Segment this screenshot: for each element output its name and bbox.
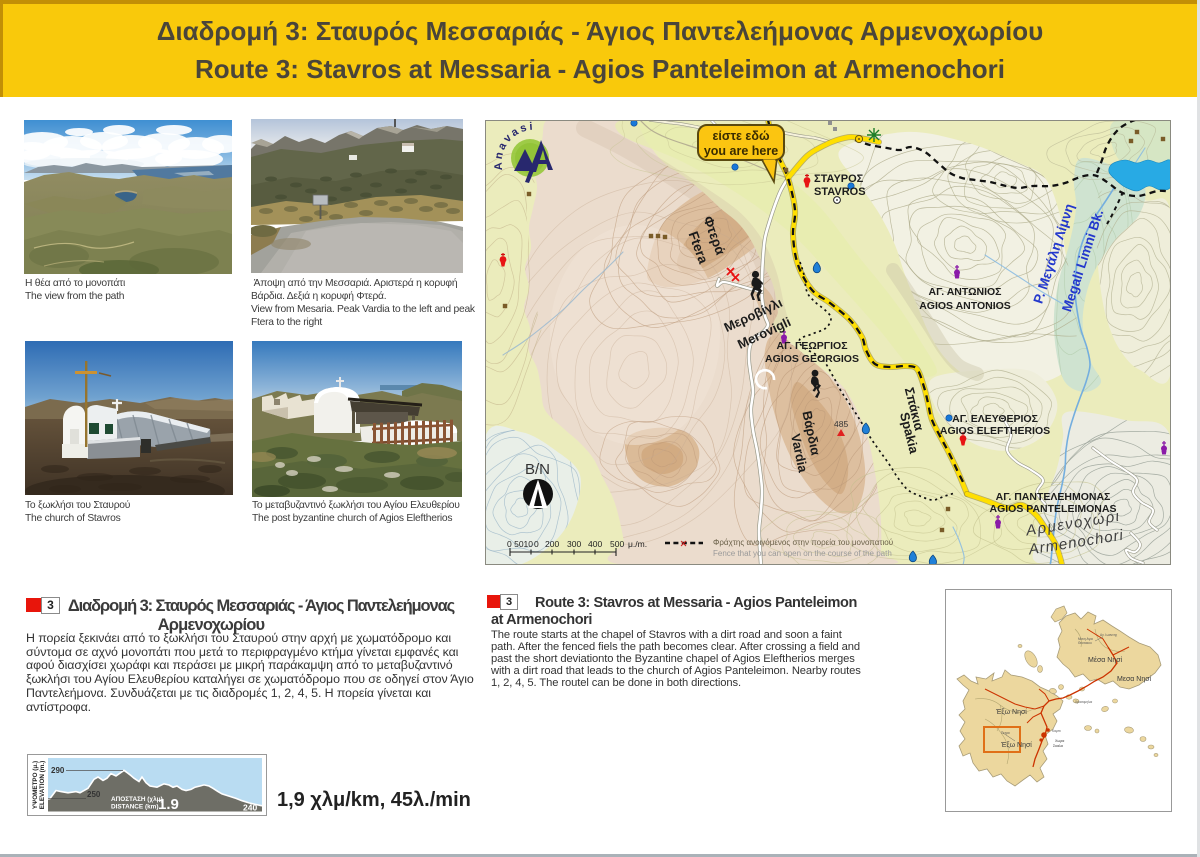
svg-text:AGIOS ELEFTHERIOS: AGIOS ELEFTHERIOS: [940, 425, 1050, 437]
svg-text:Θεοτοκου: Θεοτοκου: [1078, 641, 1092, 645]
svg-text:Έξω Νησί: Έξω Νησί: [1000, 741, 1032, 749]
svg-text:είστε εδώ: είστε εδώ: [712, 129, 769, 143]
svg-text:ΑΓ. ΓΕΩΡΓΙΟΣ: ΑΓ. ΓΕΩΡΓΙΟΣ: [776, 340, 847, 352]
svg-text:AGIOS GEORGIOS: AGIOS GEORGIOS: [765, 353, 859, 365]
svg-text:ΣΤΑΥΡΟΣ: ΣΤΑΥΡΟΣ: [814, 173, 864, 185]
svg-text:Μεσα Νησί: Μεσα Νησί: [1117, 675, 1152, 683]
svg-text:you are here: you are here: [704, 144, 778, 158]
svg-text:Σκαλα: Σκαλα: [1053, 744, 1063, 748]
svg-text:Fence that you can open on the: Fence that you can open on the course of…: [713, 549, 892, 558]
svg-text:ΑΠΟΣΤΑΣΗ (χλμ): ΑΠΟΣΤΑΣΗ (χλμ): [111, 795, 163, 803]
svg-text:ΥΨΟΜΕΤΡΟ (μ.): ΥΨΟΜΕΤΡΟ (μ.): [32, 761, 39, 809]
svg-text:AGIOS ANTONIOS: AGIOS ANTONIOS: [919, 300, 1011, 312]
svg-text:ΑΓ. ΠΑΝΤΕΛΕΗΜΟΝΑΣ: ΑΓ. ΠΑΝΤΕΛΕΗΜΟΝΑΣ: [996, 491, 1111, 503]
svg-text:1.9: 1.9: [158, 796, 179, 813]
svg-text:290: 290: [51, 766, 65, 775]
svg-text:Μέσα Νησί: Μέσα Νησί: [1088, 656, 1123, 664]
svg-text:Φράχτης ανοιγόμενος στην πορεί: Φράχτης ανοιγόμενος στην πορεία του μονο…: [713, 538, 893, 547]
svg-text:485: 485: [834, 419, 848, 429]
svg-text:Αγ. Ιωαννης: Αγ. Ιωαννης: [1100, 633, 1118, 637]
svg-text:ELEVATION (m.): ELEVATION (m.): [39, 761, 46, 809]
svg-text:Χωρα: Χωρα: [1055, 739, 1064, 743]
svg-text:DISTANCE (km): DISTANCE (km): [111, 804, 158, 811]
svg-text:ΑΓ. ΕΛΕΥΘΕΡΙΟΣ: ΑΓ. ΕΛΕΥΘΕΡΙΟΣ: [952, 413, 1038, 425]
svg-text:STAVROS: STAVROS: [814, 186, 866, 198]
svg-text:Καμπι: Καμπι: [1052, 729, 1061, 733]
svg-text:240: 240: [243, 803, 257, 813]
svg-text:ΑΓ. ΑΝΤΩΝΙΟΣ: ΑΓ. ΑΝΤΩΝΙΟΣ: [929, 286, 1002, 298]
svg-text:Χρυσομηλια: Χρυσομηλια: [1075, 700, 1092, 704]
svg-text:B/N: B/N: [525, 461, 550, 478]
svg-text:250: 250: [87, 790, 101, 799]
svg-text:Έξω Νησί: Έξω Νησί: [995, 708, 1027, 716]
